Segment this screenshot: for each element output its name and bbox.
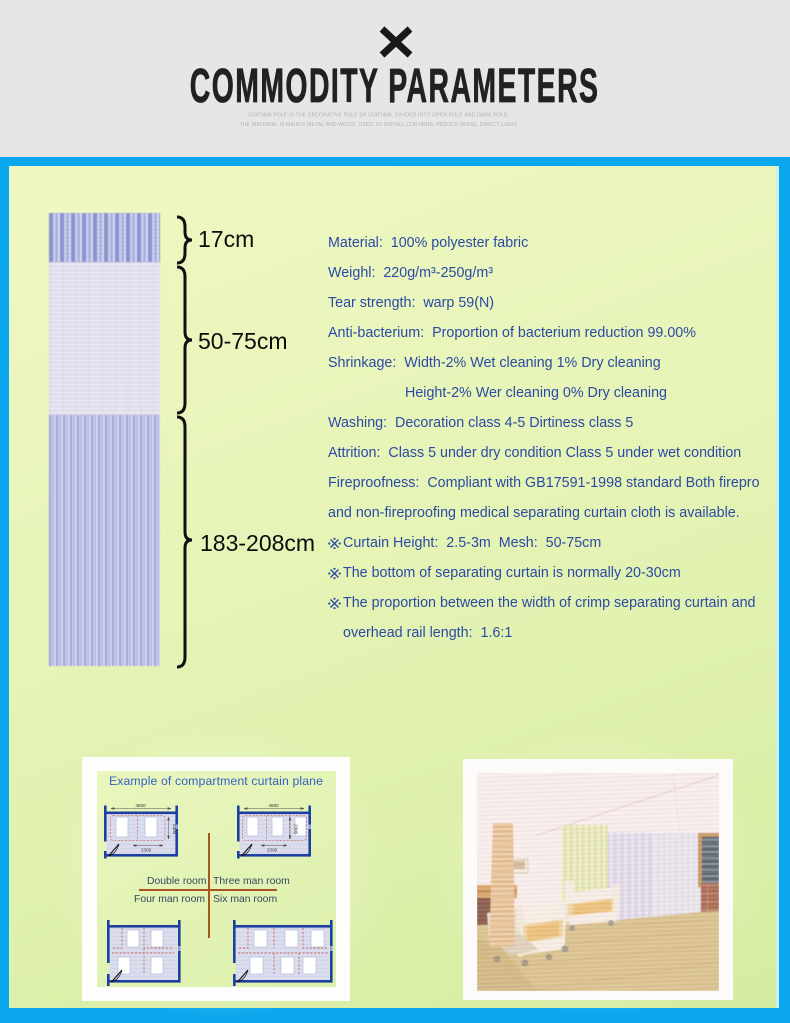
svg-text:4600: 4600 [136, 804, 147, 808]
svg-text:2300: 2300 [141, 848, 152, 853]
svg-text:2300: 2300 [294, 824, 299, 835]
svg-text:4600: 4600 [269, 804, 280, 808]
svg-text:2300: 2300 [172, 824, 177, 835]
svg-text:2300: 2300 [267, 848, 278, 853]
